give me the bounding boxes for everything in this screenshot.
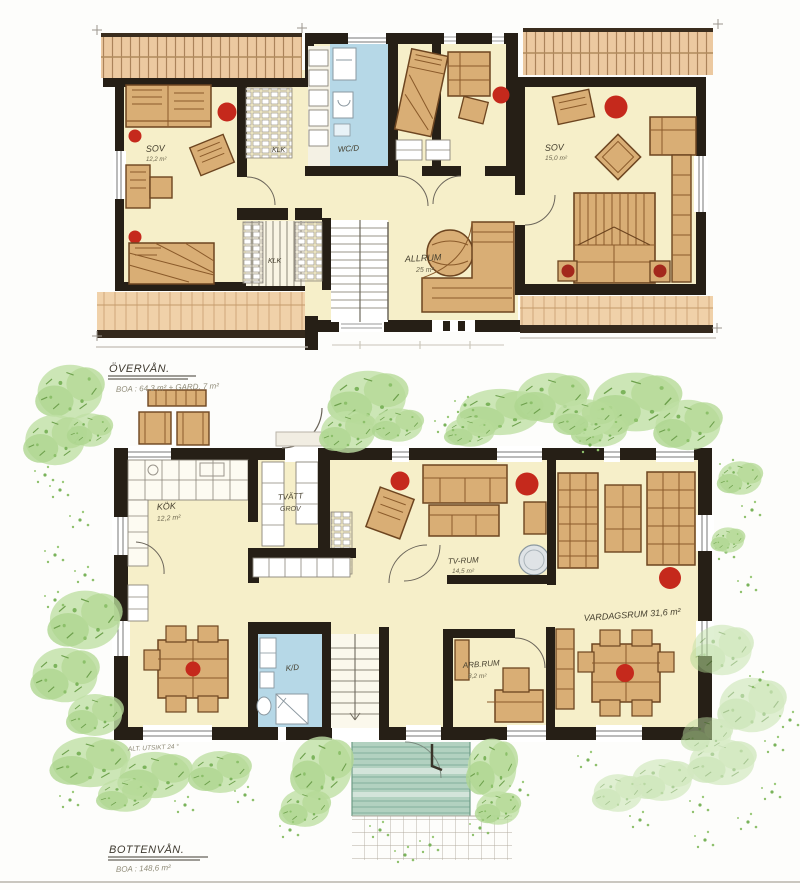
svg-text:BOA : 148,6 m²: BOA : 148,6 m² bbox=[116, 863, 171, 874]
svg-text:TV-RUM: TV-RUM bbox=[448, 555, 480, 566]
svg-text:GROV: GROV bbox=[280, 506, 302, 513]
svg-text:SOV: SOV bbox=[545, 142, 565, 153]
svg-text:K/D: K/D bbox=[285, 663, 299, 673]
svg-text:ALLRUM: ALLRUM bbox=[404, 252, 442, 264]
svg-text:SOV: SOV bbox=[146, 143, 166, 154]
svg-text:WC/D: WC/D bbox=[338, 144, 360, 154]
svg-text:15,0 m²: 15,0 m² bbox=[545, 155, 568, 162]
svg-text:KLK: KLK bbox=[272, 147, 286, 154]
svg-text:BOTTENVÅN.: BOTTENVÅN. bbox=[109, 843, 184, 856]
svg-text:12,2 m²: 12,2 m² bbox=[146, 157, 167, 163]
svg-text:TVÄTT: TVÄTT bbox=[278, 491, 305, 502]
svg-text:ÖVERVÅN.: ÖVERVÅN. bbox=[109, 362, 170, 375]
svg-text:KÖK: KÖK bbox=[156, 501, 177, 512]
svg-text:KLK: KLK bbox=[268, 258, 282, 265]
svg-text:14,5 m²: 14,5 m² bbox=[452, 568, 475, 575]
svg-text:25 m²: 25 m² bbox=[415, 267, 435, 274]
svg-text:8,2 m²: 8,2 m² bbox=[468, 673, 487, 680]
